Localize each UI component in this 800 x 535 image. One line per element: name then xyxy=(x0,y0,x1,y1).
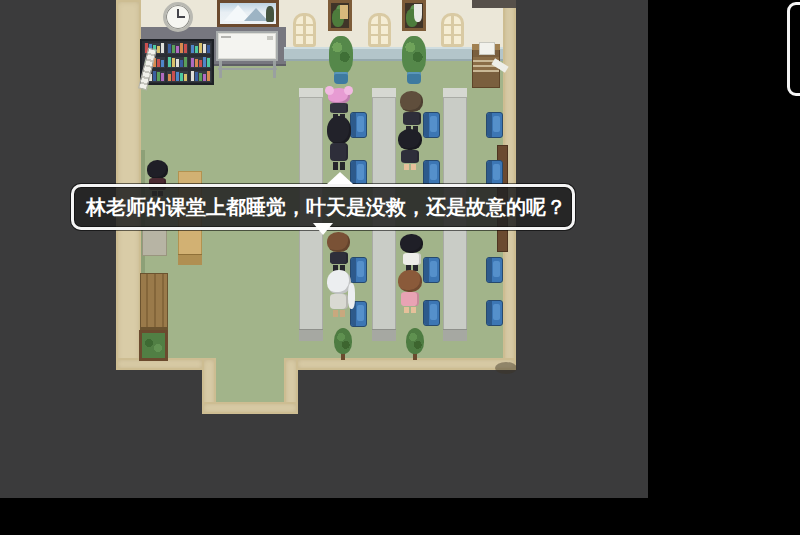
character-hair xyxy=(327,116,351,144)
character-black-hair-girl-2 xyxy=(399,234,424,271)
speaker-indicator-icon xyxy=(327,172,353,184)
character-body xyxy=(330,252,348,265)
plant-foliage xyxy=(329,36,353,74)
student-chair xyxy=(423,257,440,283)
character-body xyxy=(330,103,347,113)
plant-foliage xyxy=(406,328,424,354)
dialog-text: 林老师的课堂上都睡觉，叶天是没救，还是故意的呢？ xyxy=(74,194,566,221)
student-chair xyxy=(423,300,440,326)
scene-layer xyxy=(0,0,648,498)
character-leg xyxy=(333,162,338,170)
hair-ponytail xyxy=(348,283,355,309)
student-chair xyxy=(486,112,503,138)
character-leg xyxy=(404,307,409,313)
character-body xyxy=(401,292,420,306)
character-hair xyxy=(327,232,350,252)
character-body xyxy=(403,112,421,126)
hair-bun xyxy=(325,86,334,95)
character-hair xyxy=(400,234,423,253)
plant-foliage xyxy=(402,36,426,74)
plant-pot xyxy=(407,72,421,84)
continue-cursor-icon[interactable] xyxy=(313,223,333,235)
character-hair xyxy=(400,91,423,112)
character-hair xyxy=(147,160,168,179)
character-leg xyxy=(340,162,345,170)
character-body xyxy=(330,143,349,161)
floor-plant xyxy=(404,328,426,360)
student-chair xyxy=(486,257,503,283)
character-white-hair-student xyxy=(326,270,352,317)
character-body xyxy=(403,253,421,265)
character-brown-hair-boy xyxy=(326,232,351,271)
student-chair xyxy=(350,112,367,138)
character-leg xyxy=(411,307,416,313)
potted-plant xyxy=(402,36,426,84)
floor-plant xyxy=(332,328,354,360)
student-chair xyxy=(423,160,440,186)
plant-foliage xyxy=(334,328,352,354)
character-black-hair-girl xyxy=(397,129,423,170)
character-leg xyxy=(340,310,345,317)
character-pink-hair-girl xyxy=(327,88,351,118)
student-chair xyxy=(486,300,503,326)
student-chair xyxy=(423,112,440,138)
character-body xyxy=(401,150,420,164)
character-hair xyxy=(398,129,422,150)
screen: { "dialog": { "text": "林老师的课堂上都睡觉，叶天是没救，… xyxy=(0,0,800,535)
potted-plant xyxy=(329,36,353,84)
character-black-hair-boy xyxy=(326,116,352,170)
plant-pot xyxy=(334,72,348,84)
character-leg xyxy=(333,310,338,317)
game-viewport[interactable] xyxy=(0,0,648,498)
student-chair xyxy=(486,160,503,186)
student-chair xyxy=(350,257,367,283)
character-leg xyxy=(404,164,409,170)
character-leg xyxy=(411,164,416,170)
partial-window-top-right xyxy=(787,2,800,96)
hair-bun xyxy=(344,86,353,95)
character-body xyxy=(330,294,349,310)
character-buzz-cut-boy xyxy=(399,91,424,132)
character-pink-top-girl xyxy=(397,270,423,313)
character-hair xyxy=(398,270,422,292)
